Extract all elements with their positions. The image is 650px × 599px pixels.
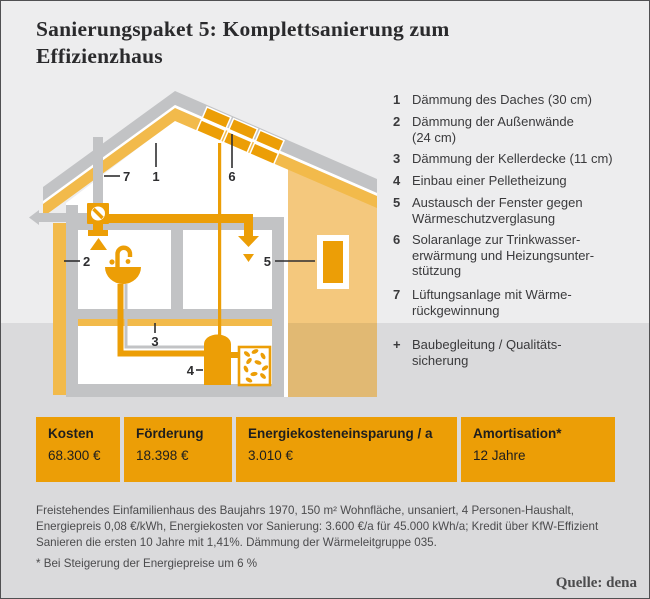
- ventilation-fan-icon: [87, 203, 109, 224]
- table-cell-label: Förderung: [136, 426, 232, 441]
- infographic-page: Sanierungspaket 5: Komplettsanierung zum…: [0, 0, 650, 599]
- legend-item-6: 6Solaranlage zur Trinkwasser- erwärmung …: [393, 232, 594, 279]
- house-label-4: 4: [187, 363, 195, 378]
- window: [317, 235, 349, 289]
- house-cross-section-diagram: 7 1 6 2 5 3 4: [21, 87, 383, 401]
- arrow-left-icon: [29, 210, 39, 225]
- table-cell-label: Kosten: [48, 426, 120, 441]
- house-label-2: 2: [83, 254, 90, 269]
- table-cell-label: Amortisation*: [473, 426, 615, 441]
- table-cell-einsparung: Energiekosteneinsparung / a 3.010 €: [236, 417, 457, 482]
- wall-gap: [284, 167, 288, 397]
- summary-table: Kosten 68.300 € Förderung 18.398 € Energ…: [36, 417, 615, 482]
- legend-item-1: 1Dämmung des Daches (30 cm): [393, 92, 592, 108]
- legend-list: 1Dämmung des Daches (30 cm) 2Dämmung der…: [393, 1, 641, 421]
- source-credit: Quelle: dena: [556, 575, 637, 592]
- legend-item-number: 5: [393, 195, 412, 226]
- legend-item-number: 6: [393, 232, 412, 279]
- legend-item-number: 7: [393, 287, 412, 318]
- basement-ceiling-insulation: [78, 319, 272, 326]
- table-cell-value: 18.398 €: [136, 448, 232, 463]
- legend-item-text: Lüftungsanlage mit Wärme- rückgewinnung: [412, 287, 572, 318]
- pellet-storage-icon: [239, 347, 270, 385]
- legend-item-text: Dämmung der Außenwände (24 cm): [412, 114, 574, 145]
- table-cell-amortisation: Amortisation* 12 Jahre: [461, 417, 615, 482]
- table-cell-value: 12 Jahre: [473, 448, 615, 463]
- legend-item-text: Dämmung des Daches (30 cm): [412, 92, 592, 108]
- table-cell-foerderung: Förderung 18.398 €: [124, 417, 232, 482]
- legend-item-3: 3Dämmung der Kellerdecke (11 cm): [393, 151, 613, 167]
- table-cell-value: 68.300 €: [48, 448, 120, 463]
- legend-item-7: 7Lüftungsanlage mit Wärme- rückgewinnung: [393, 287, 572, 318]
- legend-item-2: 2Dämmung der Außenwände (24 cm): [393, 114, 574, 145]
- house-label-3: 3: [151, 334, 158, 349]
- house-label-1: 1: [152, 169, 159, 184]
- table-cell-kosten: Kosten 68.300 €: [36, 417, 120, 482]
- footnote: * Bei Steigerung der Energiepreise um 6 …: [36, 557, 257, 570]
- legend-item-number: 1: [393, 92, 412, 108]
- legend-item-number: 3: [393, 151, 412, 167]
- exterior-wall-insulation: [53, 223, 66, 395]
- solar-pipe: [218, 143, 221, 339]
- legend-item-text: Dämmung der Kellerdecke (11 cm): [412, 151, 613, 167]
- table-cell-label: Energiekosteneinsparung / a: [248, 426, 457, 441]
- legend-item-number: 2: [393, 114, 412, 145]
- legend-item-text: Solaranlage zur Trinkwasser- erwärmung u…: [412, 232, 594, 279]
- legend-item-text: Baubegleitung / Qualitäts- sicherung: [412, 337, 562, 368]
- table-cell-value: 3.010 €: [248, 448, 457, 463]
- footer-description: Freistehendes Einfamilienhaus des Baujah…: [36, 503, 621, 550]
- legend-item-5: 5Austausch der Fenster gegen Wärmeschutz…: [393, 195, 583, 226]
- legend-item-number: 4: [393, 173, 412, 189]
- page-title: Sanierungspaket 5: Komplettsanierung zum…: [36, 16, 450, 70]
- house-label-5: 5: [264, 254, 271, 269]
- legend-item-4: 4Einbau einer Pelletheizung: [393, 173, 567, 189]
- house-label-6: 6: [228, 169, 235, 184]
- legend-item-text: Austausch der Fenster gegen Wärmeschutzv…: [412, 195, 583, 226]
- legend-item-text: Einbau einer Pelletheizung: [412, 173, 567, 189]
- house-label-7: 7: [123, 169, 130, 184]
- legend-item-number: +: [393, 337, 412, 368]
- legend-item-plus: +Baubegleitung / Qualitäts- sicherung: [393, 337, 562, 368]
